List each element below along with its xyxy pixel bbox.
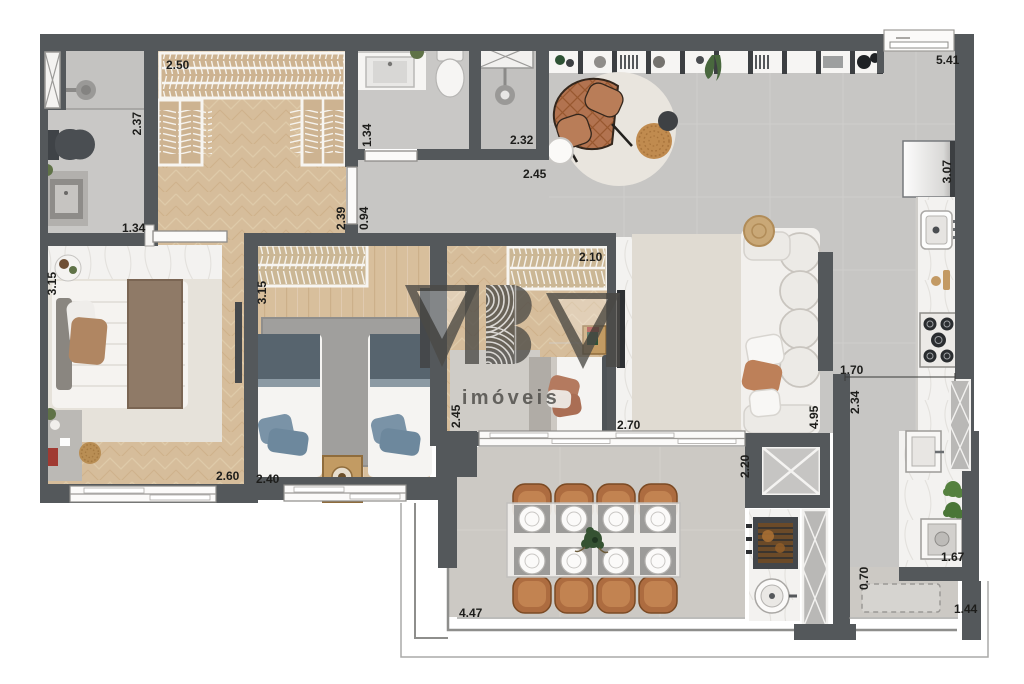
svg-text:imóveis: imóveis [462, 387, 560, 409]
svg-text:1.34: 1.34 [122, 221, 146, 235]
svg-text:2.70: 2.70 [617, 418, 641, 432]
svg-text:2.10: 2.10 [579, 250, 603, 264]
svg-text:2.39: 2.39 [334, 206, 348, 230]
svg-text:0.94: 0.94 [357, 206, 371, 230]
svg-text:1.44: 1.44 [954, 602, 978, 616]
svg-text:2.20: 2.20 [738, 454, 752, 478]
svg-text:2.34: 2.34 [848, 390, 862, 414]
svg-text:4.95: 4.95 [807, 405, 821, 429]
svg-text:2.37: 2.37 [130, 112, 144, 136]
svg-text:2.60: 2.60 [216, 469, 240, 483]
svg-text:5.41: 5.41 [936, 53, 960, 67]
svg-text:2.50: 2.50 [166, 58, 190, 72]
svg-text:1.34: 1.34 [360, 123, 374, 147]
svg-text:4.47: 4.47 [459, 606, 483, 620]
svg-text:2.40: 2.40 [256, 472, 280, 486]
svg-text:3.07: 3.07 [940, 160, 954, 184]
svg-text:3.15: 3.15 [45, 272, 59, 296]
svg-text:3.15: 3.15 [255, 281, 269, 305]
svg-text:2.45: 2.45 [523, 167, 547, 181]
svg-text:0.70: 0.70 [857, 566, 871, 590]
svg-text:1.70: 1.70 [840, 363, 864, 377]
svg-text:1.67: 1.67 [941, 550, 965, 564]
svg-text:2.32: 2.32 [510, 133, 534, 147]
